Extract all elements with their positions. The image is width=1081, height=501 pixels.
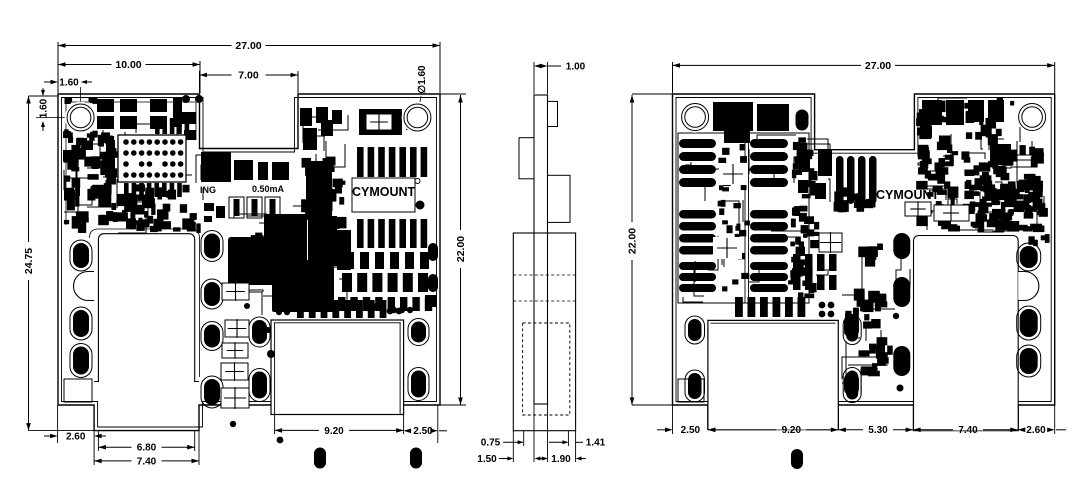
svg-text:∅1.60: ∅1.60 (417, 65, 428, 94)
svg-text:2.60: 2.60 (66, 431, 86, 442)
svg-text:0.50mA: 0.50mA (252, 184, 285, 194)
svg-text:22.00: 22.00 (627, 228, 639, 254)
svg-text:27.00: 27.00 (865, 60, 891, 72)
svg-text:1.90: 1.90 (551, 454, 571, 465)
svg-text:10.00: 10.00 (115, 59, 141, 71)
svg-text:1.41: 1.41 (586, 438, 606, 449)
svg-text:1.00: 1.00 (566, 61, 586, 72)
svg-text:2.60: 2.60 (1026, 425, 1046, 436)
svg-text:2.50: 2.50 (681, 425, 701, 436)
svg-text:7.40: 7.40 (958, 425, 978, 436)
svg-text:1.50: 1.50 (477, 454, 497, 465)
svg-text:0.75: 0.75 (481, 438, 501, 449)
svg-text:24.75: 24.75 (23, 248, 35, 274)
svg-text:7.00: 7.00 (238, 70, 259, 82)
svg-text:1.60: 1.60 (38, 98, 49, 118)
svg-text:7.40: 7.40 (137, 456, 157, 467)
svg-text:1.60: 1.60 (59, 77, 79, 88)
svg-text:9.20: 9.20 (324, 426, 344, 437)
svg-text:22.00: 22.00 (455, 236, 467, 262)
svg-text:5.30: 5.30 (868, 425, 888, 436)
svg-text:CYMOUNT: CYMOUNT (352, 185, 416, 199)
svg-text:2.50: 2.50 (413, 426, 433, 437)
svg-text:9.20: 9.20 (782, 425, 802, 436)
svg-text:6.80: 6.80 (137, 443, 157, 454)
svg-text:ING: ING (200, 185, 216, 195)
svg-text:27.00: 27.00 (235, 40, 261, 52)
